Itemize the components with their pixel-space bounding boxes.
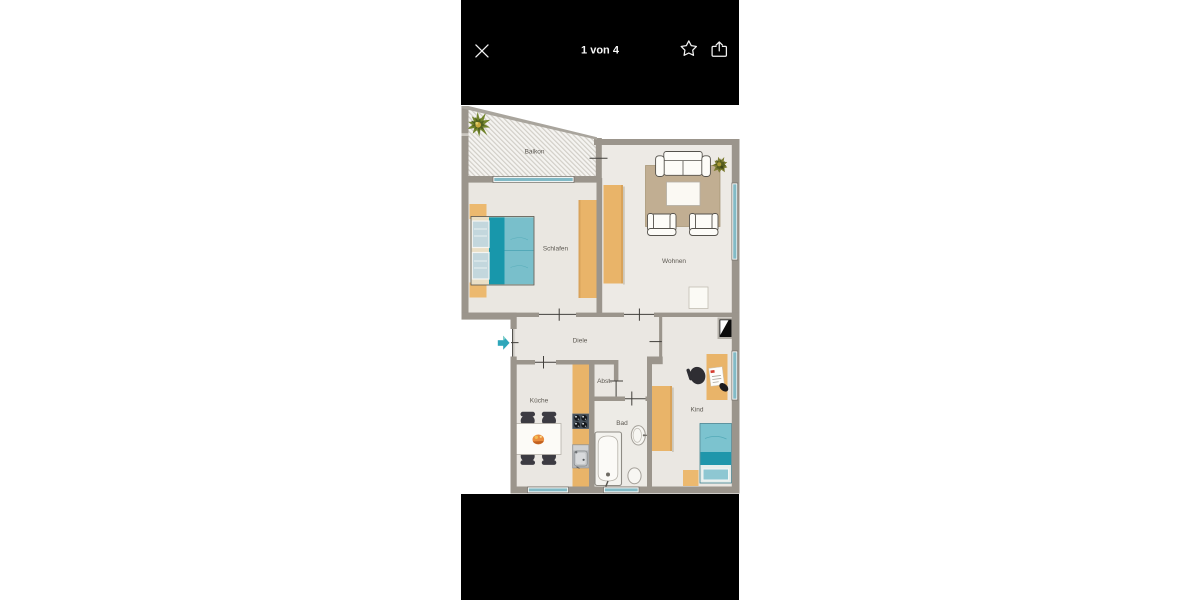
svg-text:Küche: Küche	[530, 398, 549, 405]
svg-text:Kind: Kind	[690, 407, 703, 414]
svg-text:Bad: Bad	[616, 420, 628, 427]
svg-text:Balkon: Balkon	[525, 149, 545, 156]
svg-text:Wohnen: Wohnen	[662, 258, 686, 265]
svg-text:1 von 4: 1 von 4	[581, 45, 620, 57]
svg-text:Diele: Diele	[573, 338, 588, 345]
svg-text:Schlafen: Schlafen	[543, 246, 569, 253]
svg-text:Abst.: Abst.	[597, 378, 612, 385]
